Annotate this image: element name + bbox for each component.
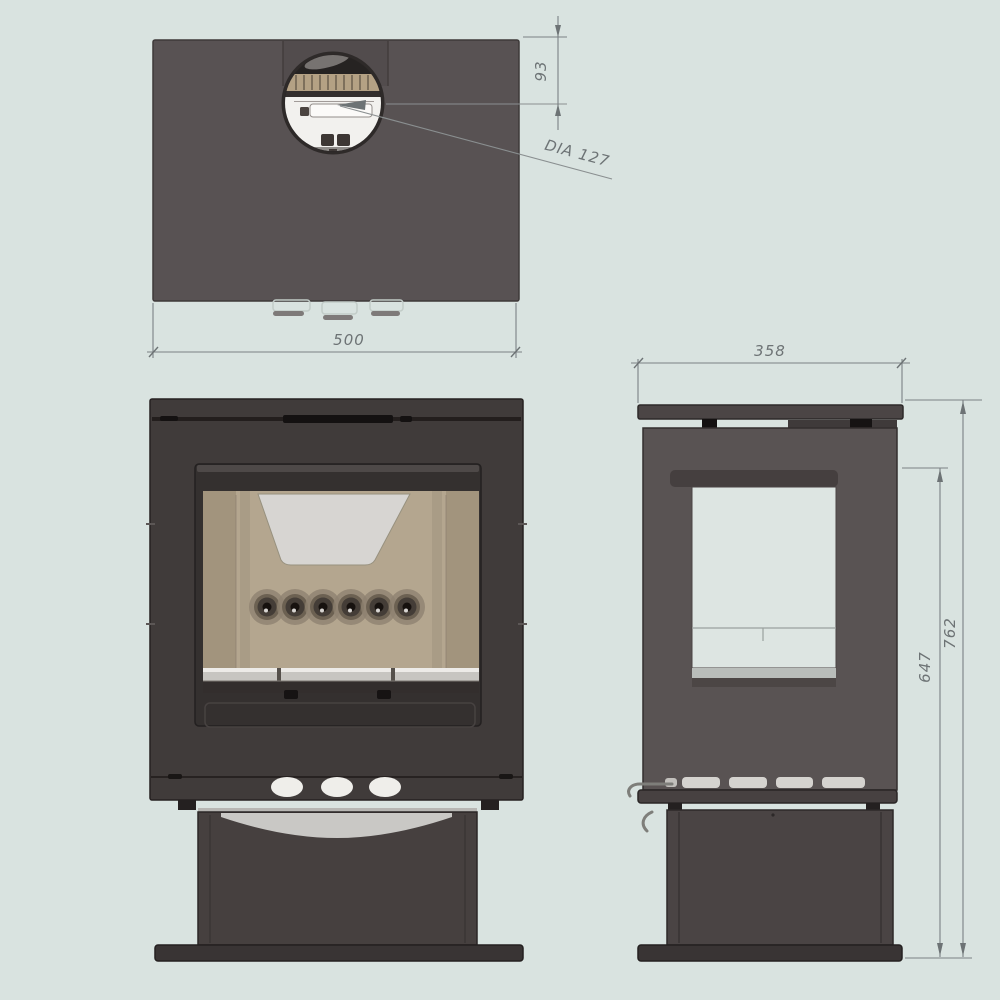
dim-label-358: 358 — [754, 342, 786, 360]
dim-top-width: 500 — [147, 303, 522, 358]
side-bottom-plate — [638, 790, 897, 803]
dim-label-762: 762 — [941, 617, 959, 649]
dim-label-93: 93 — [532, 60, 550, 81]
damper-pivot — [300, 107, 309, 116]
side-top-plate — [638, 405, 903, 419]
dim-window-height: 647 — [902, 468, 948, 957]
dim-side-depth: 358 — [631, 342, 910, 403]
stove-technical-drawing: 500 93 DIA 127 — [0, 0, 1000, 1000]
side-window — [670, 470, 838, 687]
dim-label-647: 647 — [916, 651, 934, 683]
top-view — [153, 40, 519, 320]
pedestal-side — [667, 810, 893, 945]
top-view-feet-marks — [273, 300, 403, 320]
drawing-svg: 500 93 DIA 127 — [0, 0, 1000, 1000]
side-bottom-slots — [665, 777, 865, 788]
door — [195, 464, 481, 727]
base-plate-front — [155, 945, 523, 961]
log-retainer-bar — [203, 668, 479, 681]
pedestal-front — [198, 808, 477, 945]
base-plate-side — [638, 945, 902, 961]
firebox-interior — [203, 491, 479, 699]
dim-label-500: 500 — [333, 331, 365, 349]
front-air-slots — [271, 777, 401, 797]
dim-label-dia127: DIA 127 — [543, 136, 612, 171]
side-view — [629, 405, 903, 961]
front-view — [146, 399, 527, 961]
